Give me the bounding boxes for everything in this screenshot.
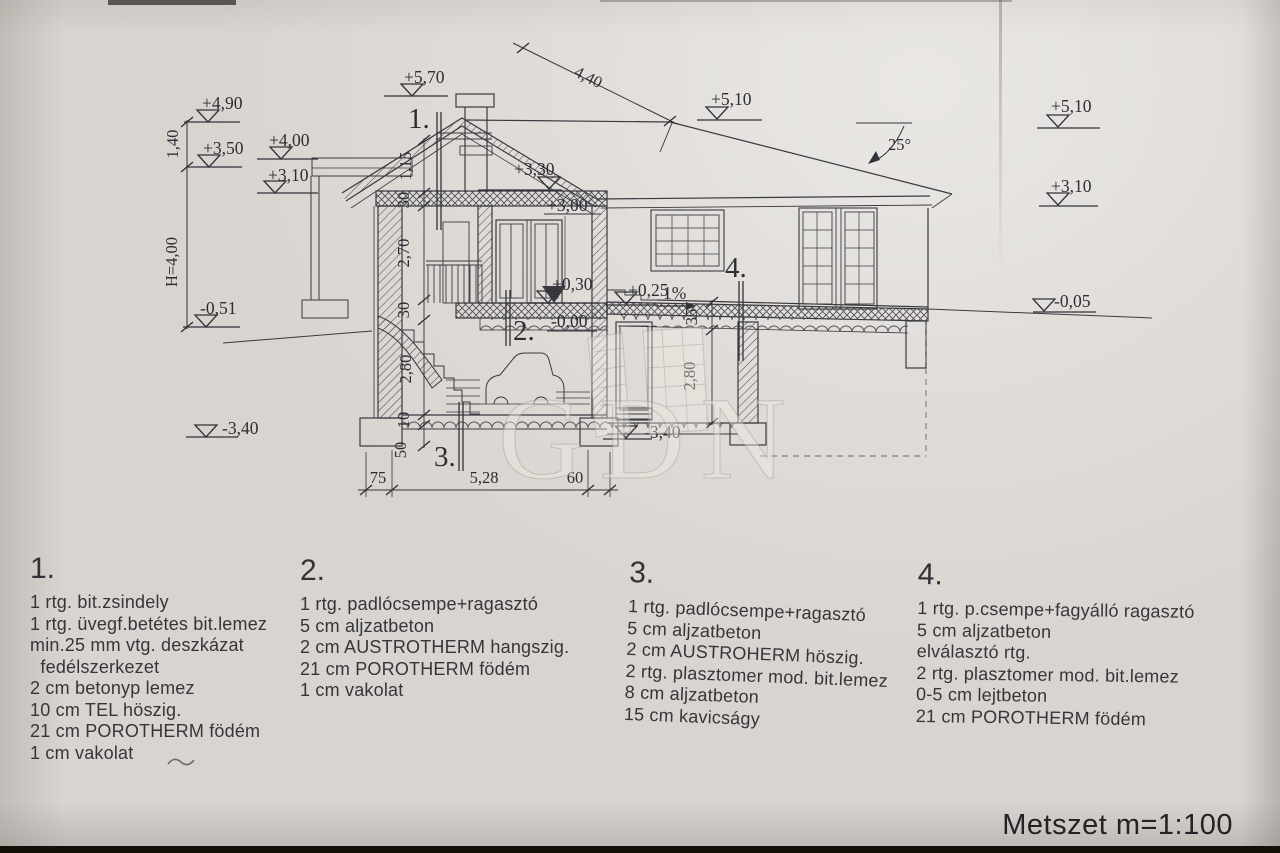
note-line: 2 cm AUSTROTHERM hangszig. — [300, 637, 600, 659]
level-label: +5,70 — [404, 67, 445, 87]
level-label: +0,30 — [552, 274, 593, 294]
level-marker-310-left: +3,10 — [257, 165, 318, 193]
dim-30-attic-label: 30 — [394, 192, 413, 209]
dim-270-label: 2,70 — [394, 239, 413, 268]
level-label: +3,30 — [514, 159, 555, 179]
ground-floor-openings — [443, 216, 566, 303]
level-label: +3,10 — [1051, 176, 1092, 196]
dim-528-label: 5,28 — [470, 468, 499, 487]
note-2: 2. 1 rtg. padlócsempe+ragasztó 5 cm aljz… — [300, 554, 600, 702]
note-line: 1 rtg. bit.zsindely — [30, 592, 330, 614]
dim-115-label: 1,15 — [396, 152, 415, 181]
level-marker-025: +0,25 — [606, 280, 669, 305]
note-line: 1 rtg. padlócsempe+ragasztó — [300, 594, 600, 616]
level-marker-310-right: +3,10 — [1039, 176, 1098, 206]
chimney — [456, 94, 494, 192]
stair-railing — [426, 261, 482, 303]
callout-3: 3. — [434, 441, 456, 473]
level-marker-030: +0,30 — [528, 274, 598, 303]
note-line: min.25 mm vtg. deszkázat — [30, 635, 330, 657]
note-3: 3. 1 rtg. padlócsempe+ragasztó 5 cm aljz… — [624, 556, 930, 736]
dim-10-label: 10 — [394, 412, 413, 429]
level-marker-570: +5,70 — [384, 67, 448, 96]
level-marker-350: +3,50 — [186, 138, 244, 167]
note-4-number: 4. — [918, 558, 1218, 596]
note-1-number: 1. — [30, 552, 330, 586]
note-line: 1 cm vakolat — [30, 743, 330, 765]
dim-roof-span: 4,40 — [513, 43, 677, 152]
dim-chain-far-left: 1,40 H=4,00 — [162, 117, 193, 332]
note-line: 5 cm aljzatbeton — [300, 616, 600, 638]
note-line: fedélszerkezet — [30, 657, 330, 679]
level-label: +3,00 — [547, 195, 588, 215]
level-label: -3,40 — [222, 418, 259, 438]
level-label: -0,00 — [551, 311, 588, 331]
level-marker-005: -0,05 — [1033, 291, 1096, 312]
dim-30-floor-label: 30 — [394, 302, 413, 319]
level-label: +4,00 — [269, 130, 310, 150]
roof-angle-label: 25° — [888, 135, 911, 154]
rear-window-square — [651, 210, 724, 271]
note-line: 10 cm TEL höszig. — [30, 700, 330, 722]
slope-annotation: 1% — [657, 283, 696, 310]
scan-bottom-edge — [0, 846, 1280, 853]
level-label: +5,10 — [1051, 96, 1092, 116]
level-marker-510-mid: +5,10 — [697, 89, 762, 120]
angle-arrowhead — [868, 151, 880, 164]
level-label: +5,10 — [711, 89, 752, 109]
level-label: -0,05 — [1054, 291, 1091, 311]
note-line: 21 cm POROTHERM födém — [300, 659, 600, 681]
level-label: +4,90 — [202, 93, 243, 113]
dim-280-left-label: 2,80 — [396, 355, 415, 384]
level-marker-340-left: -3,40 — [186, 418, 259, 438]
dim-height-label: H=4,00 — [162, 237, 181, 287]
roof-angle-annotation: 25° — [856, 123, 912, 164]
slope-label: 1% — [663, 283, 686, 303]
note-line: 1 rtg. üvegf.betétes bit.lemez — [30, 614, 330, 636]
note-line: 21 cm POROTHERM födém — [916, 705, 1216, 731]
level-marker-510-right: +5,10 — [1037, 96, 1100, 128]
note-2-number: 2. — [300, 554, 600, 588]
note-line: 1 cm vakolat — [300, 680, 600, 702]
dim-140-label: 1,40 — [163, 130, 182, 159]
callout-4: 4. — [725, 252, 747, 284]
dim-roof-span-label: 4,40 — [571, 62, 605, 92]
rear-building — [466, 120, 952, 309]
callout-1: 1. — [408, 103, 430, 135]
rear-window-tall — [799, 208, 877, 309]
note-line: 2 cm betonyp lemez — [30, 678, 330, 700]
level-marker-400: +4,00 — [257, 130, 318, 159]
dim-50-label: 50 — [391, 442, 410, 459]
drawing-title: Metszet m=1:100 — [1002, 809, 1233, 842]
note-line: 21 cm POROTHERM födém — [30, 721, 330, 743]
level-label: -0,51 — [200, 298, 236, 318]
note-1: 1. 1 rtg. bit.zsindely 1 rtg. üvegf.beté… — [30, 552, 330, 764]
level-marker-330: +3,30 — [478, 159, 562, 190]
dim-75-label: 75 — [370, 468, 387, 487]
level-label: +3,10 — [268, 165, 309, 185]
callout-2: 2. — [513, 315, 535, 347]
level-label: +3,50 — [203, 138, 244, 158]
watermark-text: GDN — [498, 373, 802, 504]
note-4: 4. 1 rtg. p.csempe+fagyálló ragasztó 5 c… — [916, 558, 1218, 731]
dim-35-label: 35 — [682, 309, 701, 326]
ground-line-left — [223, 331, 372, 343]
